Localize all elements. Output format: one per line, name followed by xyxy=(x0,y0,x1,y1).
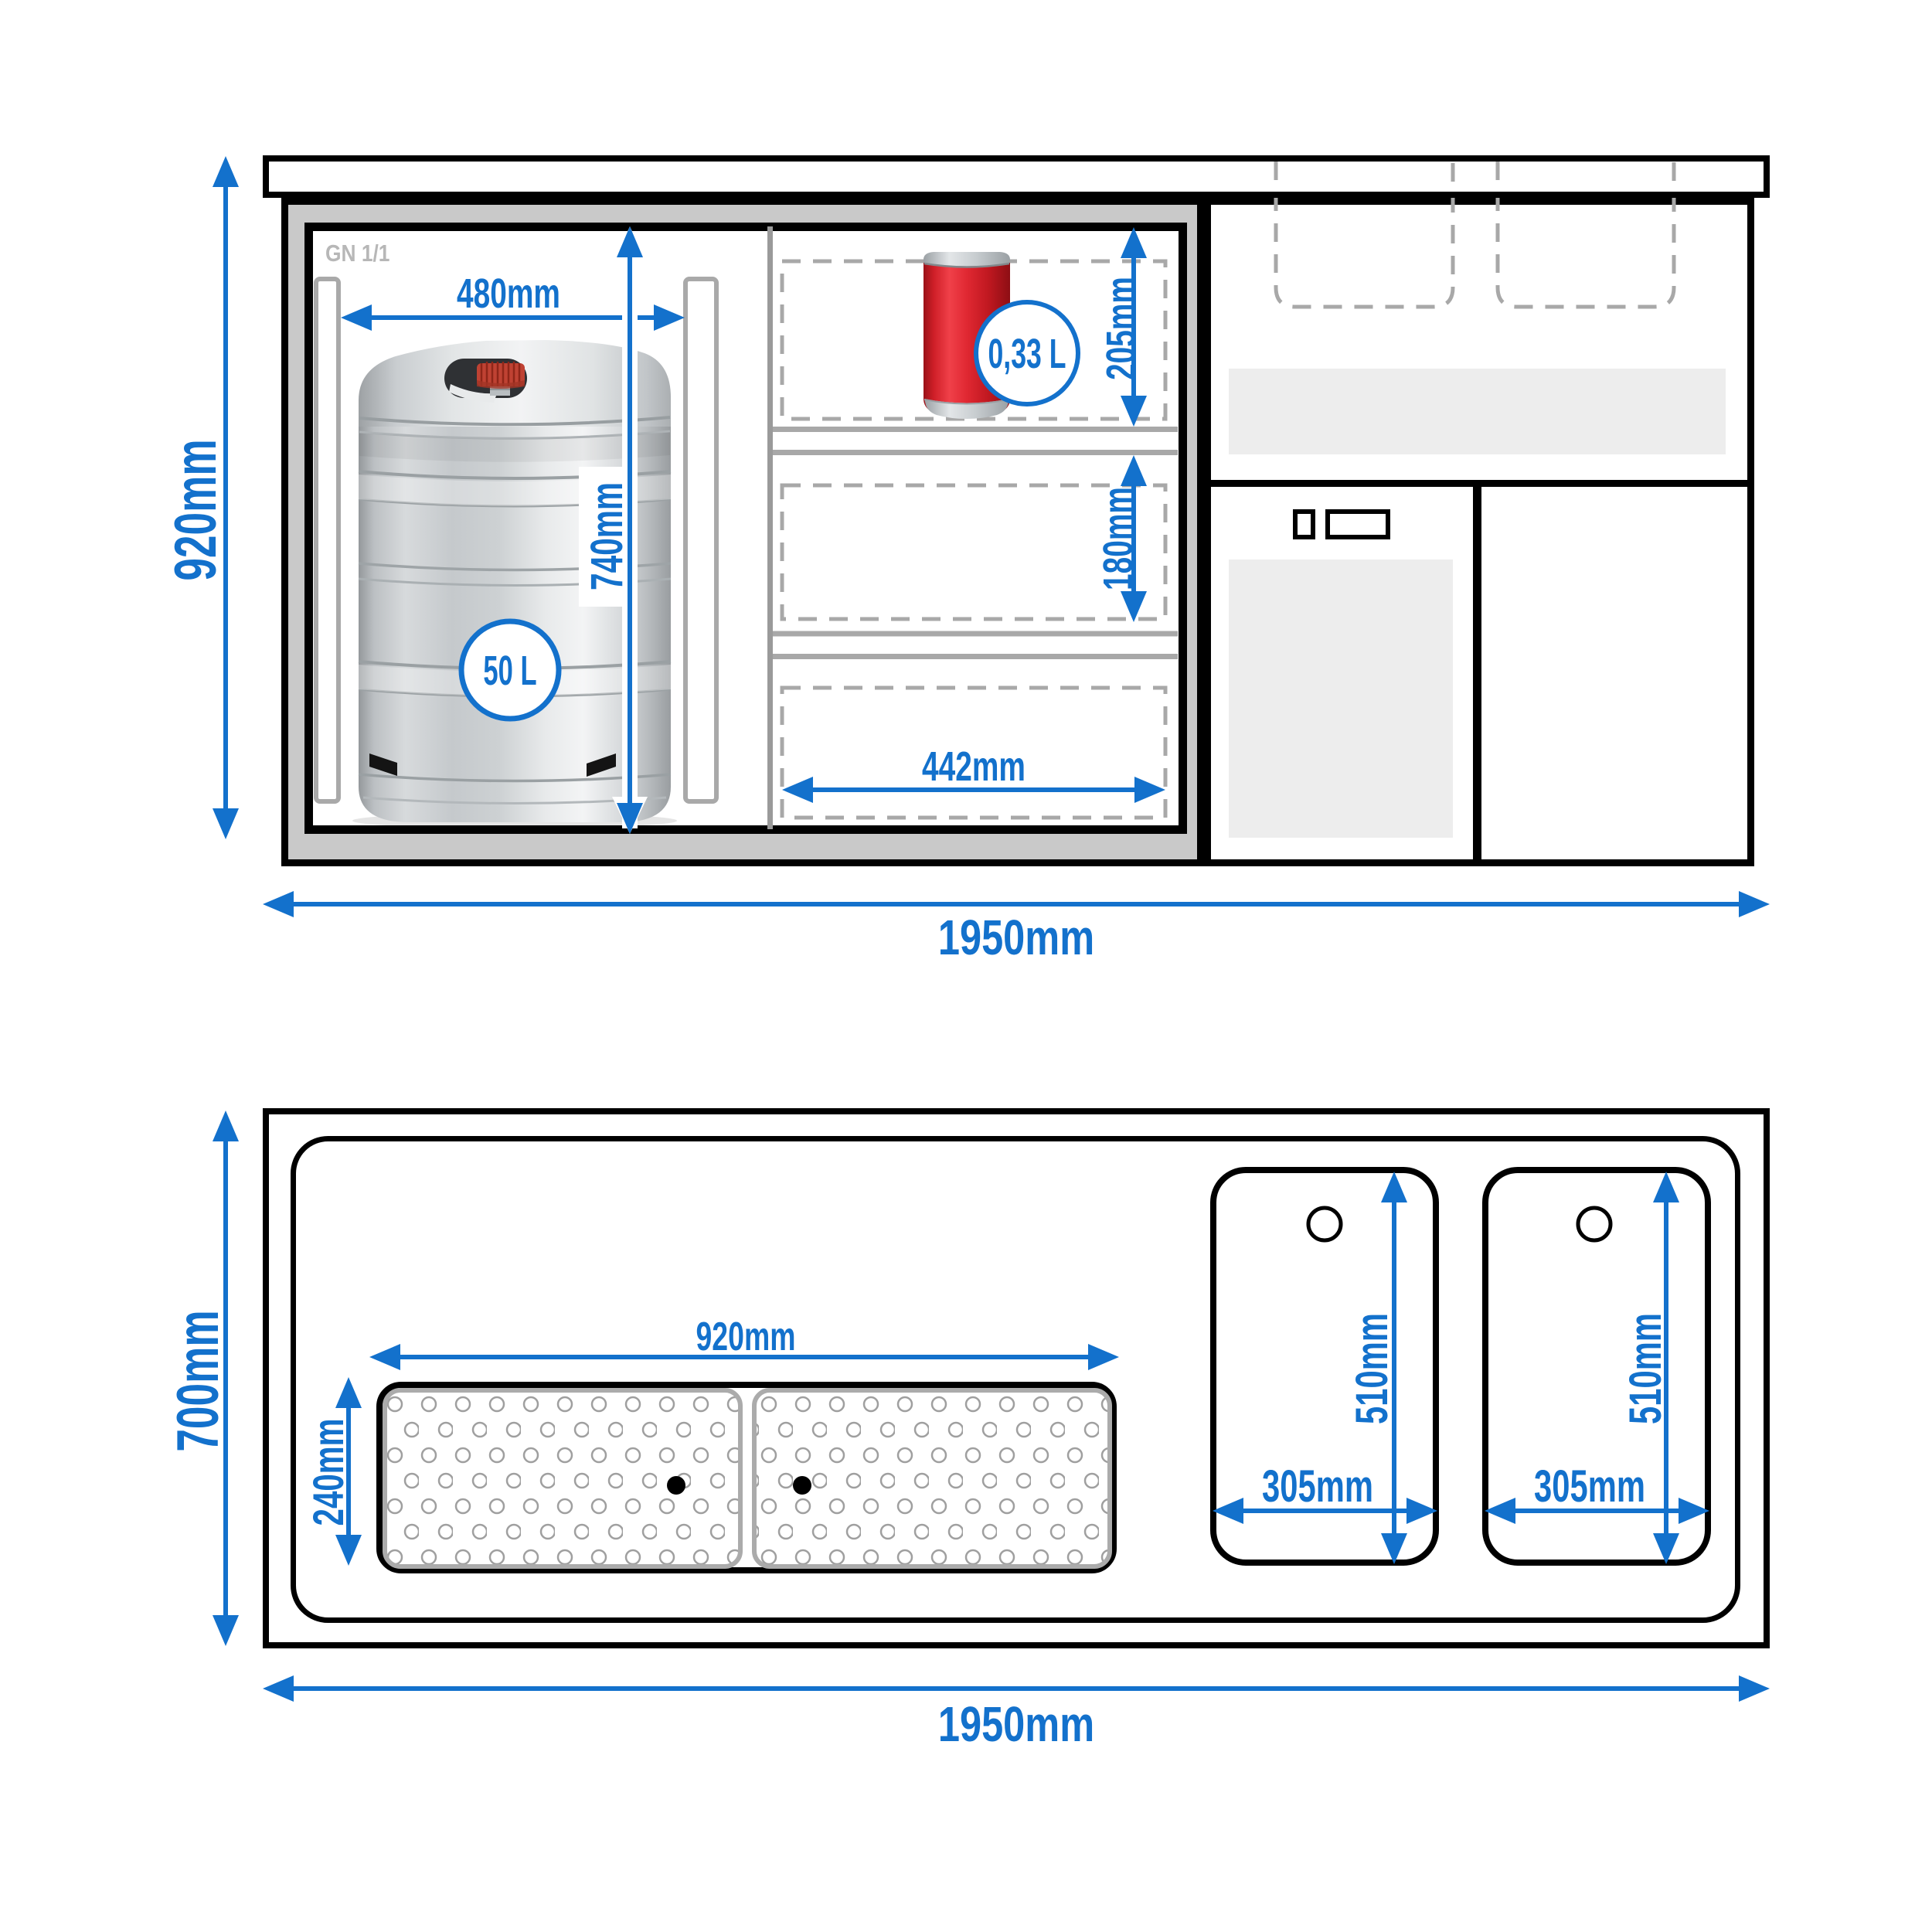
svg-text:920mm: 920mm xyxy=(163,439,229,580)
svg-text:1950mm: 1950mm xyxy=(938,1697,1094,1752)
svg-text:205mm: 205mm xyxy=(1097,277,1145,380)
svg-text:480mm: 480mm xyxy=(457,270,560,317)
svg-text:442mm: 442mm xyxy=(922,743,1026,790)
svg-text:700mm: 700mm xyxy=(165,1310,231,1451)
svg-text:510mm: 510mm xyxy=(1346,1313,1396,1424)
svg-text:305mm: 305mm xyxy=(1262,1461,1373,1511)
svg-text:1950mm: 1950mm xyxy=(938,910,1094,965)
svg-text:180mm: 180mm xyxy=(1094,487,1141,590)
svg-text:305mm: 305mm xyxy=(1534,1461,1645,1511)
svg-text:0,33 L: 0,33 L xyxy=(988,331,1066,377)
svg-text:240mm: 240mm xyxy=(305,1419,353,1526)
svg-text:50 L: 50 L xyxy=(483,647,536,694)
svg-text:510mm: 510mm xyxy=(1620,1313,1670,1424)
svg-text:920mm: 920mm xyxy=(696,1314,795,1359)
svg-text:GN 1/1: GN 1/1 xyxy=(325,240,389,267)
svg-text:740mm: 740mm xyxy=(582,482,632,590)
